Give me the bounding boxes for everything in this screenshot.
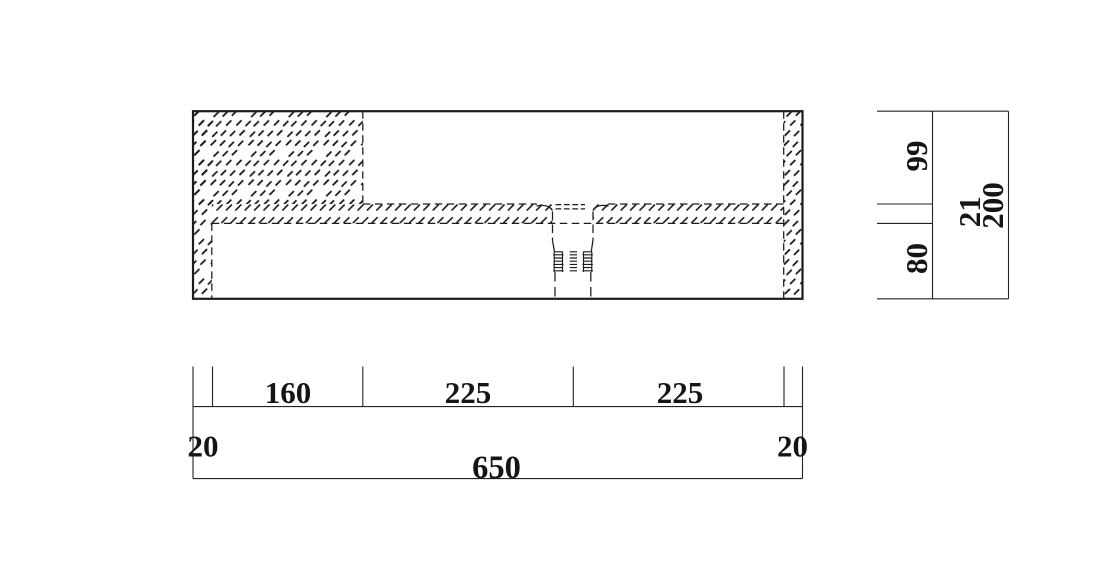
- svg-text:20: 20: [188, 428, 219, 463]
- svg-text:80: 80: [899, 243, 934, 274]
- svg-text:99: 99: [899, 141, 934, 172]
- svg-text:650: 650: [472, 450, 521, 486]
- svg-text:225: 225: [445, 375, 492, 410]
- svg-text:160: 160: [265, 375, 312, 410]
- svg-text:20: 20: [777, 428, 808, 463]
- svg-text:200: 200: [975, 182, 1010, 229]
- svg-text:225: 225: [657, 375, 704, 410]
